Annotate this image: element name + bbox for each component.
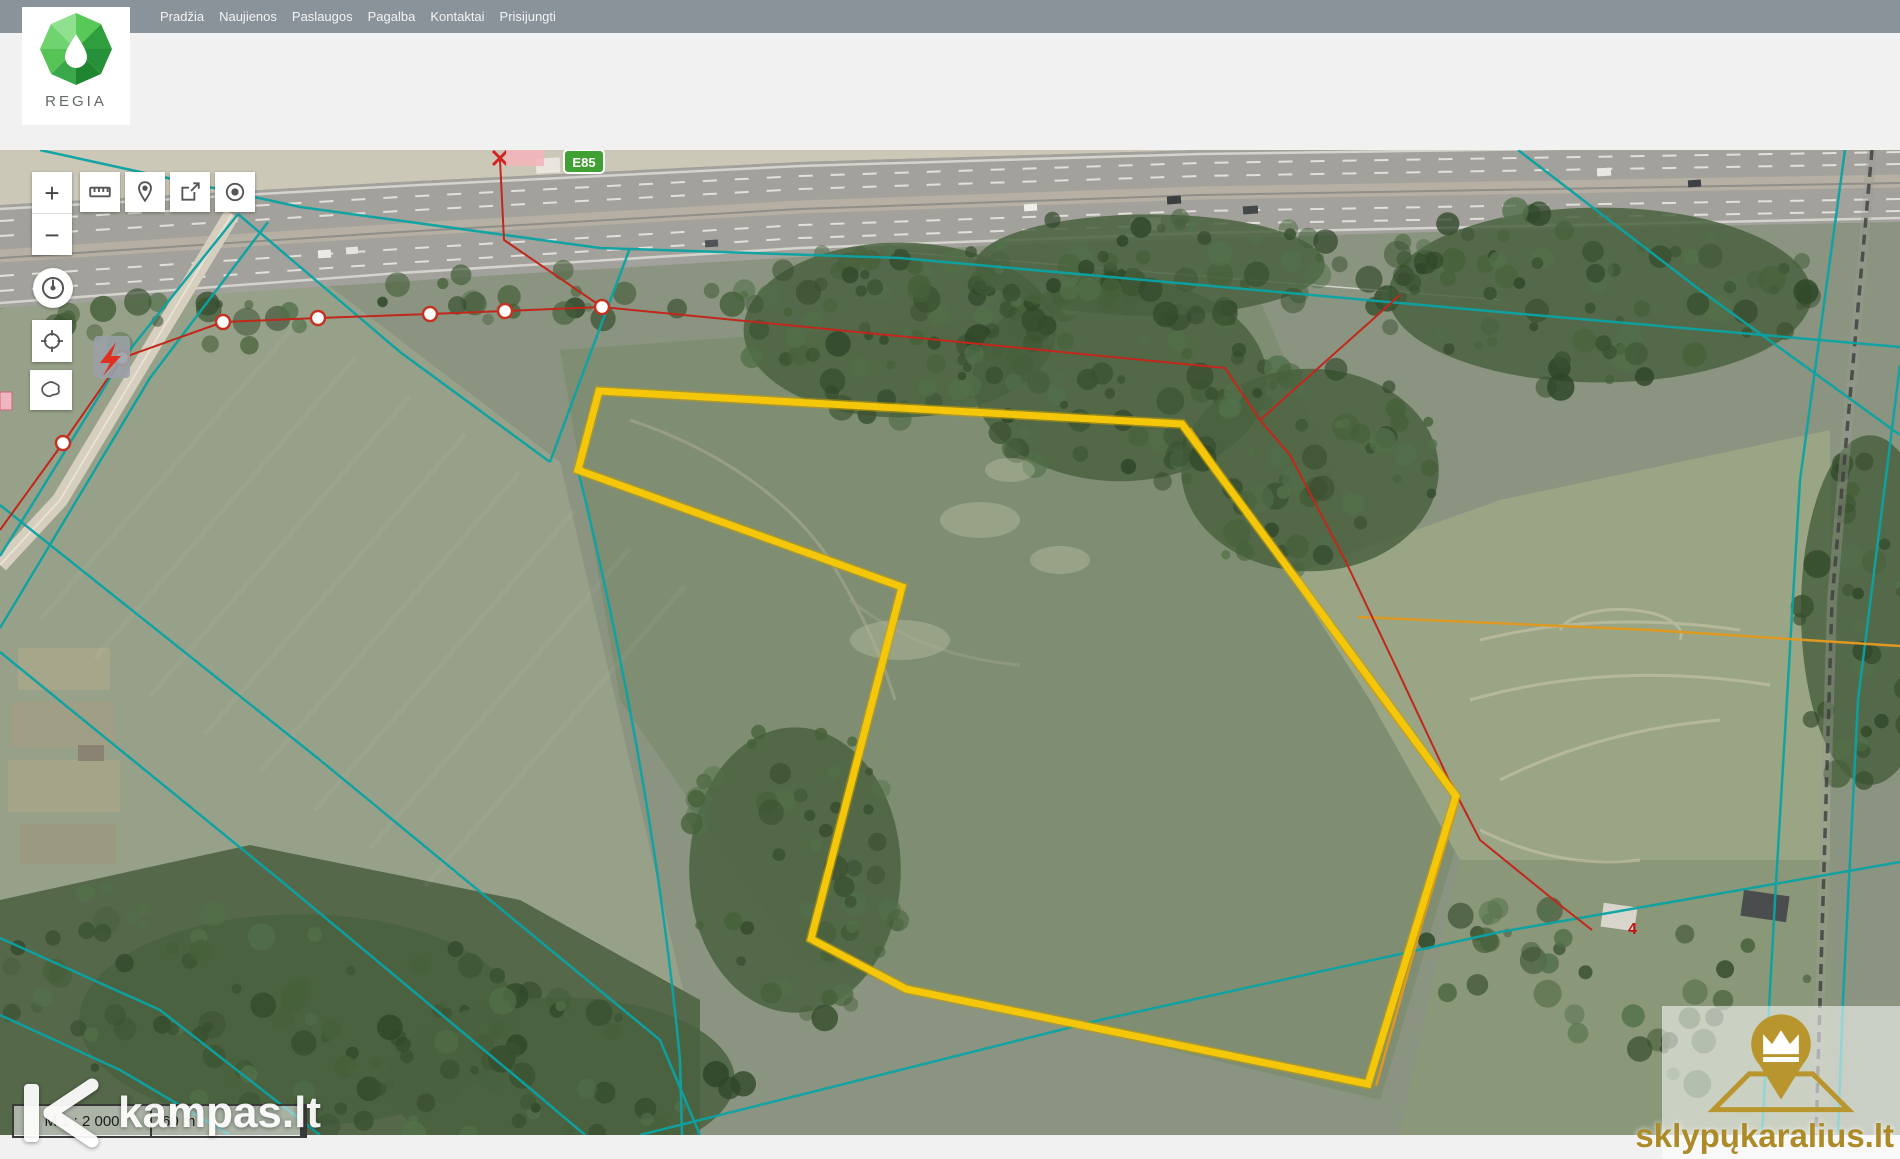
nav-item-naujienos[interactable]: Naujienos	[219, 9, 277, 24]
locate-tool-button[interactable]	[215, 172, 255, 212]
nav-item-paslaugos[interactable]: Paslaugos	[292, 9, 353, 24]
map-canvas[interactable]: E85 4	[0, 150, 1900, 1135]
zoom-out-button[interactable]: −	[32, 214, 72, 255]
nav-item-pradzia[interactable]: Pradžia	[160, 9, 204, 24]
marker-tool-button[interactable]	[125, 172, 165, 212]
regia-logo-tab[interactable]: REGIA	[22, 7, 130, 125]
watermark-kampas: kampas.lt	[20, 1078, 321, 1148]
road-sign-e85: E85	[564, 150, 604, 173]
zoom-in-button[interactable]: +	[32, 172, 72, 213]
lithuania-extent-button[interactable]	[30, 370, 72, 410]
map-pin-icon	[133, 180, 157, 204]
ruler-icon	[88, 180, 112, 204]
watermark-kampas-text: kampas.lt	[118, 1088, 321, 1138]
nav-item-kontaktai[interactable]: Kontaktai	[430, 9, 484, 24]
edge-label-badge	[0, 392, 12, 410]
crosshair-icon	[40, 329, 64, 353]
house-number-label: 4	[1628, 921, 1637, 938]
nav-item-prisijungti[interactable]: Prisijungti	[500, 9, 556, 24]
electricity-marker-icon	[94, 336, 130, 378]
watermark-sklypukaralius: sklypųkaralius.lt	[1662, 1006, 1900, 1159]
nav-item-pagalba[interactable]: Pagalba	[368, 9, 416, 24]
share-export-icon	[178, 180, 202, 204]
share-tool-button[interactable]	[170, 172, 210, 212]
watermark-sklypukaralius-text: sklypųkaralius.lt	[1635, 1117, 1894, 1155]
top-navigation-bar: Pradžia Naujienos Paslaugos Pagalba Kont…	[0, 0, 1900, 33]
measure-label-badge	[506, 150, 544, 166]
road-sign-text: E85	[572, 155, 595, 170]
target-dot-icon	[223, 180, 247, 204]
lithuania-outline-icon	[38, 378, 64, 402]
regia-gem-logo	[34, 7, 118, 91]
crown-pin-icon	[1662, 1006, 1900, 1118]
history-button[interactable]	[33, 268, 73, 308]
brand-name: REGIA	[45, 93, 107, 110]
clock-icon	[40, 275, 66, 301]
crosshair-button[interactable]	[32, 320, 72, 362]
kampas-k-logo-icon	[20, 1078, 112, 1148]
regia-gis-page: Pradžia Naujienos Paslaugos Pagalba Kont…	[0, 0, 1900, 1159]
zoom-control: + −	[32, 172, 72, 255]
map-viewport: E85 4	[0, 150, 1900, 1135]
measure-tool-button[interactable]	[80, 172, 120, 212]
main-nav: Pradžia Naujienos Paslaugos Pagalba Kont…	[160, 0, 556, 33]
